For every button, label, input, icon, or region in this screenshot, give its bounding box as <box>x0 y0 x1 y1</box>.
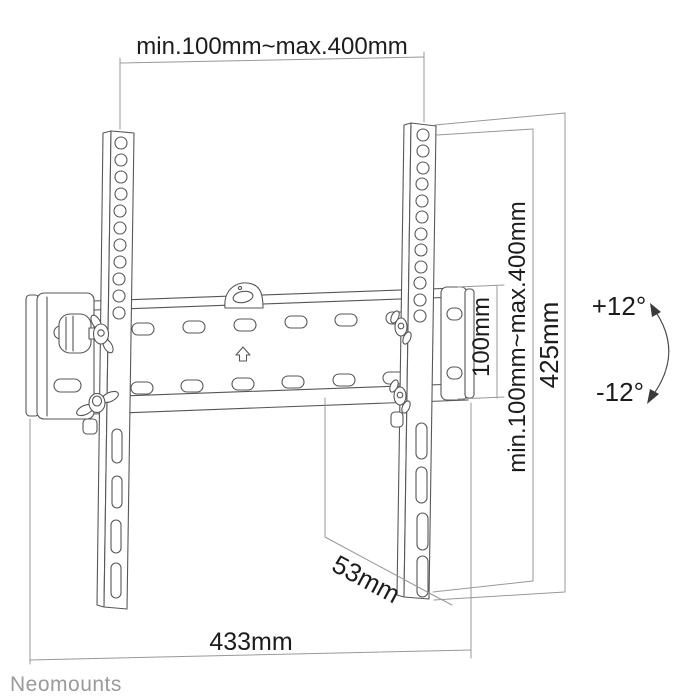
dim-label-plate-width: 433mm <box>209 628 292 656</box>
dim-label-mount-width: min.100mm~max.400mm <box>136 33 407 60</box>
dim-label-bracket-height: 425mm <box>534 302 564 389</box>
tilt-up-label: +12° <box>592 291 647 321</box>
tilt-arc <box>647 303 669 404</box>
left-bracket-rail <box>97 131 134 609</box>
arrow-down-icon <box>647 389 659 404</box>
dim-label-plate-height: 100mm <box>468 297 495 377</box>
dim-label-mount-height: min.100mm~max.400mm <box>504 201 531 472</box>
hook-tab <box>225 283 263 308</box>
tilt-down-label: -12° <box>596 377 644 407</box>
arrow-up-icon <box>650 303 661 317</box>
up-arrow-icon <box>236 347 250 361</box>
dim-label-wall-distance: 53mm <box>327 549 405 609</box>
right-bracket-rail <box>397 123 436 599</box>
brand-logo: Neomounts <box>10 673 122 696</box>
wall-mount-diagram: min.100mm~max.400mm 100mm min.100mm~max.… <box>0 0 700 700</box>
left-end-cap <box>26 293 94 419</box>
